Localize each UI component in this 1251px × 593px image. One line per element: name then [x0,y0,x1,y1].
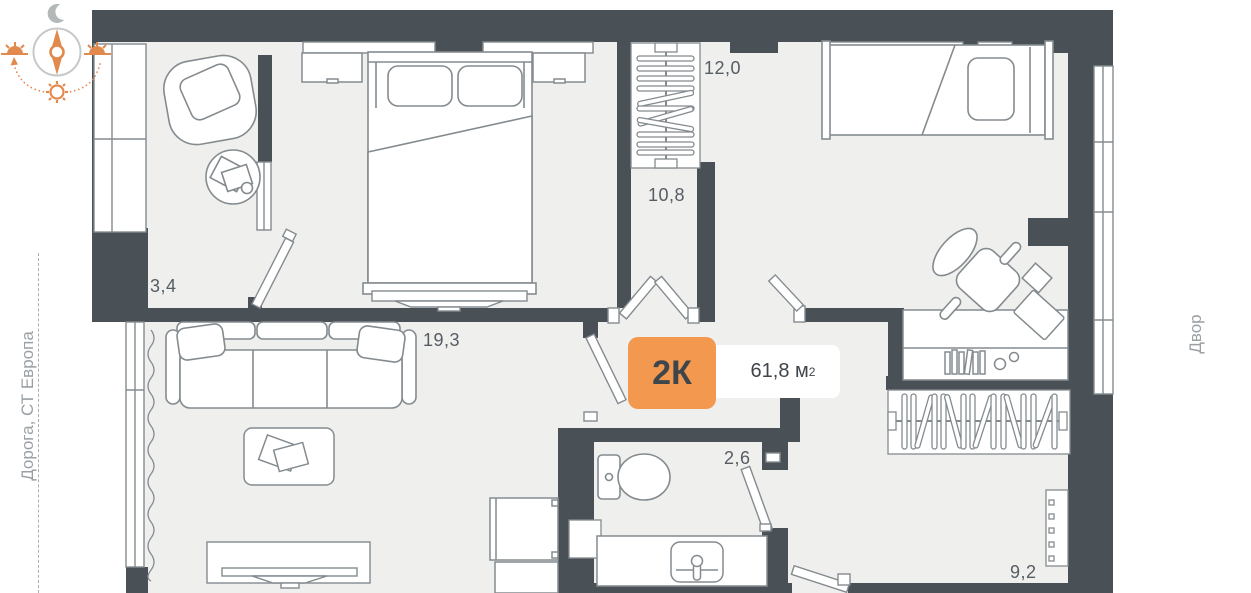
label-hallway-area: 10,8 [648,185,685,206]
nightstand-right [533,53,585,83]
sun-path-arrowhead [11,57,19,66]
sun-path-compass [0,0,112,112]
compass-icon [34,29,81,76]
cabinet [495,562,558,593]
label-living-room-area: 19,3 [423,330,460,351]
sink-counter [597,536,767,586]
side-table [206,150,260,204]
moon-icon [45,1,69,25]
total-area-sup: 2 [809,365,816,379]
label-bathroom-area: 2,6 [724,448,751,469]
label-balcony-area: 3,4 [150,276,177,297]
label-kitchen-area: 9,2 [1010,562,1037,583]
sunset-icon [84,42,111,54]
sunrise-icon [1,42,28,54]
floor-plan-page: 3,4 12,0 10,8 19,3 2,6 9,2 61,8 м2 2К До… [0,0,1251,593]
single-bed [822,41,1053,139]
vent-niche [569,520,601,558]
left-surroundings-label: Дорога, СТ Европа [18,311,38,501]
sofa [166,322,416,408]
hall-wardrobe [888,390,1070,454]
fridge [490,498,558,560]
right-surroundings-label: Двор [1186,296,1206,372]
electrical-panel [1046,490,1068,566]
total-area-pill: 61,8 м2 [700,345,840,398]
closet-hanger-rail [631,43,700,168]
coffee-table [244,428,334,485]
apartment-type-badge: 2К [628,337,716,409]
label-bedroom-area: 12,0 [704,58,741,79]
sun-icon [46,81,68,103]
living-room-window [126,322,144,567]
toilet [598,454,670,500]
right-wall-window [1094,66,1113,394]
double-bed [363,52,536,294]
floor-plan-drawing [0,0,1251,593]
road-boundary-dashed-line [38,253,39,593]
nightstand-left [302,53,362,83]
tv-stand [207,542,370,588]
total-area-value: 61,8 м [751,360,809,383]
